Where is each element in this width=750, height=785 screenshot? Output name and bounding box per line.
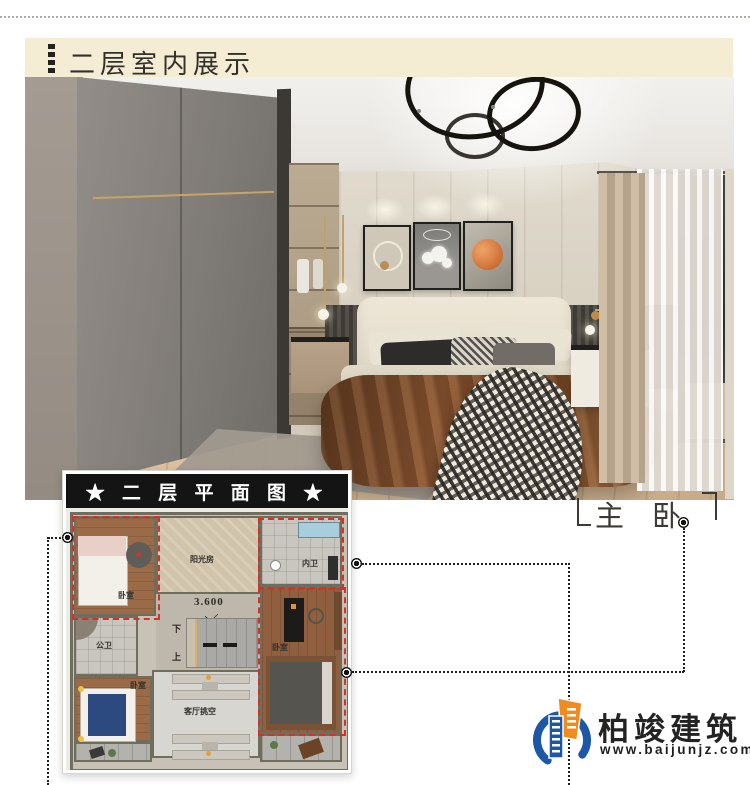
callout-line [362,563,570,565]
stair-landing [187,619,197,667]
wall-art-orange-sphere [463,221,513,291]
callout-marker [62,532,73,543]
plan-chair [89,746,105,759]
plan-cushion [206,675,211,680]
callout-line [47,537,49,785]
plan-label-stair-up: 上 [172,650,181,663]
plan-label-living-void: 客厅挑空 [184,706,216,717]
left-wall [25,77,83,500]
curtain-edge [725,169,734,499]
plan-label-public-bath: 公卫 [96,640,112,651]
company-website: www.baijunjz.com [600,742,750,757]
callout-marker [678,517,689,528]
plan-stairs [186,618,258,668]
logo-mark-icon [528,692,596,772]
plan-sofa [172,690,250,700]
plan-lamp [78,686,84,692]
art-dot-motif [380,261,389,270]
bracket-left-icon [577,498,591,526]
art-spotlight-glow [365,197,405,223]
plan-label-stair-down: 下 [172,622,181,635]
callout-line [683,528,685,672]
beige-drape [599,173,645,483]
nightstand-top [291,337,349,342]
wardrobe-seam [180,77,182,500]
stair-arrow-icon [203,643,217,647]
plan-shower [76,618,98,640]
wall-art-ring [363,225,411,291]
pendant-cord [324,217,326,311]
top-dotted-divider [0,16,750,18]
stair-arrow-icon [223,643,237,647]
promo-page: 二层室内展示 [0,0,750,785]
plan-plant [270,741,278,749]
plan-table [298,738,324,760]
section-header: 二层室内展示 [25,38,733,77]
art-ellipse-motif [423,229,451,241]
ring-light-icon [445,113,505,159]
wall-art-spheres [413,222,461,290]
callout-marker [341,667,352,678]
plan-table [202,682,218,690]
plan-plant [108,749,116,757]
hanging-clothes [313,259,323,289]
pendant-cord [342,215,344,285]
wardrobe-handle [93,191,274,199]
floor-plan-card: ★ 二 层 平 面 图 ★ 卧室 阳光房 内卫 3.600 [62,470,352,774]
plan-balcony-left [74,742,152,762]
plan-label-bedroom-bl: 卧室 [130,680,146,691]
floor-plan-title: ★ 二 层 平 面 图 ★ [66,474,348,508]
hanging-clothes [297,259,309,293]
master-bedroom-label: 主 卧 [595,493,691,535]
plan-balcony-right [260,734,342,762]
plan-table [202,742,218,750]
callout-line [352,671,684,673]
plan-sofa [172,750,250,760]
pendant-bulb [337,283,347,293]
pendant-bulb [318,309,329,320]
highlight-box-inner-bath [258,518,344,590]
plan-cushion [206,751,211,756]
callout-marker [351,558,362,569]
company-logo: 柏竣建筑 www.baijunjz.com [528,690,733,774]
ceiling-spot [417,109,421,113]
ceiling-spot [491,105,495,109]
section-title: 二层室内展示 [69,44,255,81]
plan-label-sunroom: 阳光房 [190,554,214,565]
pendant-bulb [585,325,595,335]
art-spotlight-glow [465,192,505,218]
dashed-bar-icon [48,44,55,73]
highlight-box-bedroom-tl [72,516,160,620]
master-bedroom-photo [25,77,734,500]
bracket-right-icon [702,492,717,520]
art-spotlight-glow [415,194,455,220]
art-sphere [442,258,452,268]
art-orange-ball [472,239,503,270]
highlight-box-master-bedroom [258,587,346,736]
floor-plan: 卧室 阳光房 内卫 3.600 下 上 公卫 [66,508,348,770]
sheer-curtain [637,169,723,491]
plan-bed-duvet [88,694,126,736]
plan-dimension: 3.600 [194,596,224,608]
